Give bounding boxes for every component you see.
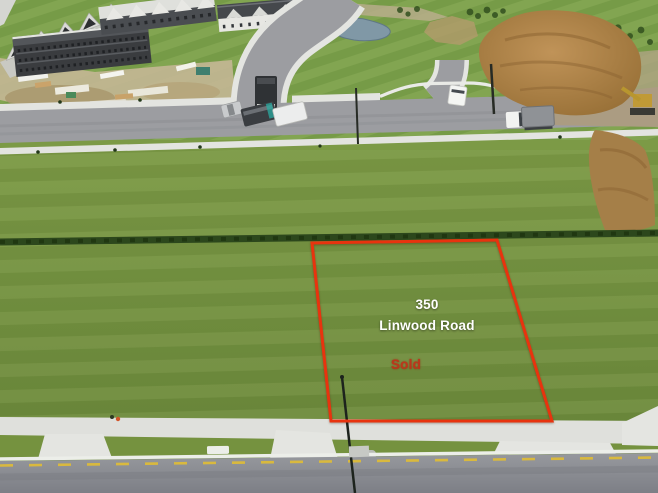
aerial-photo-scene [0, 0, 658, 493]
white-van [448, 85, 467, 106]
bottom-road [0, 451, 658, 493]
aerial-photo: 350 Linwood Road Sold [0, 0, 658, 493]
orange-marker [116, 417, 120, 421]
